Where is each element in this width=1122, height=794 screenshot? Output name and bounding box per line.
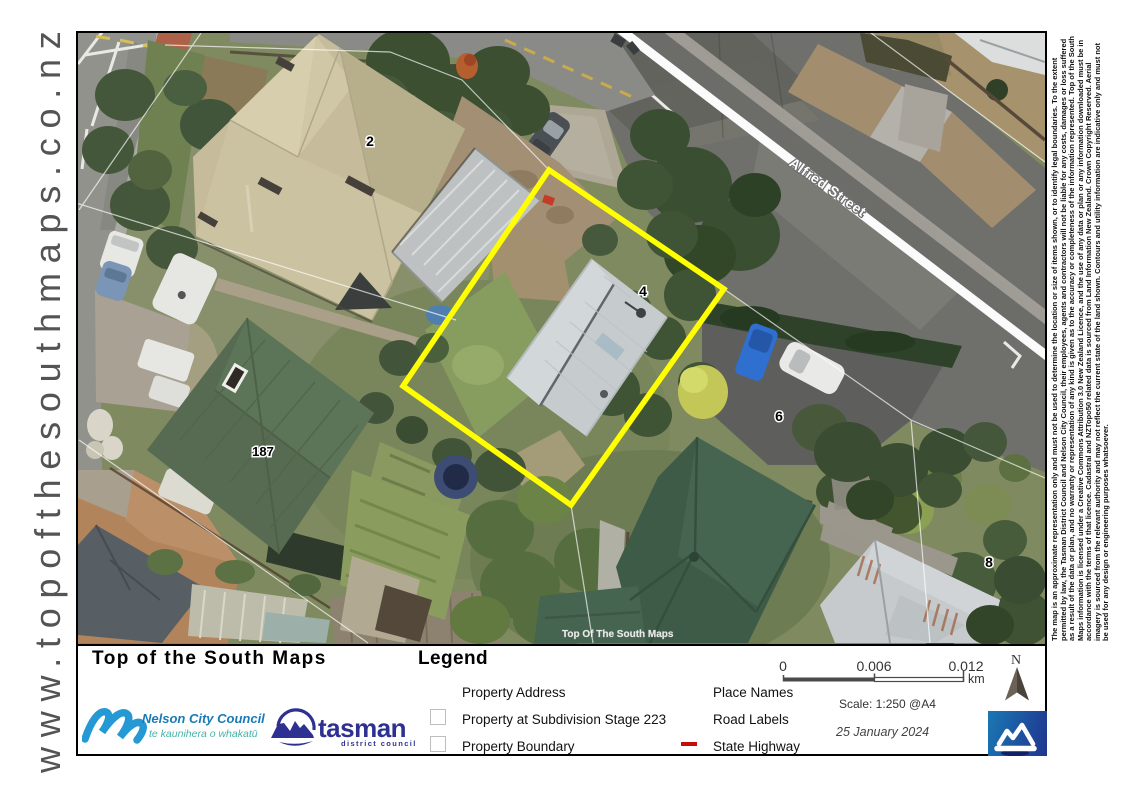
svg-text:187: 187	[252, 444, 274, 459]
svg-text:8: 8	[985, 554, 993, 570]
svg-text:0: 0	[779, 658, 787, 674]
svg-text:Top Of The South Maps: Top Of The South Maps	[562, 629, 674, 640]
svg-text:Nelson City Council: Nelson City Council	[142, 711, 265, 726]
svg-text:4: 4	[639, 283, 647, 299]
svg-text:te kaunihera o whakatū: te kaunihera o whakatū	[149, 728, 258, 740]
svg-text:6: 6	[775, 408, 783, 424]
svg-text:2: 2	[366, 133, 374, 149]
svg-text:0.006: 0.006	[856, 658, 891, 674]
svg-text:N: N	[1011, 653, 1021, 668]
svg-text:district council: district council	[341, 739, 417, 748]
